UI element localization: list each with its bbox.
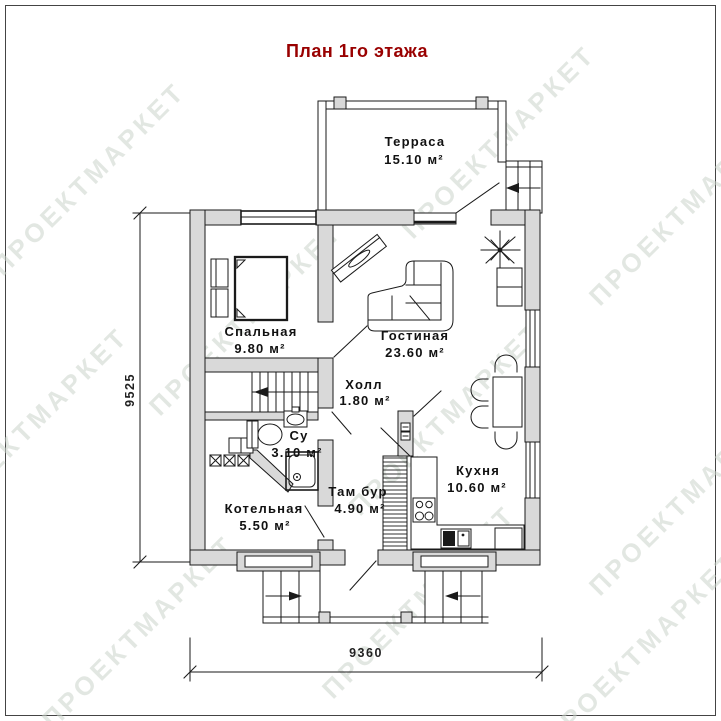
kitchen-cabinet xyxy=(495,528,522,549)
shelf-unit xyxy=(497,268,522,306)
nightstand xyxy=(211,289,228,317)
room-area-tambour: 4.90 м² xyxy=(334,501,385,516)
bed xyxy=(235,257,287,320)
wall-hall-left xyxy=(318,358,333,408)
switch-boxes xyxy=(401,423,410,440)
dimension-height-label: 9525 xyxy=(123,373,137,407)
nightstand xyxy=(211,259,228,287)
wall-bedroom-hall xyxy=(205,358,333,372)
room-label-boiler: Котельная xyxy=(225,501,304,516)
wall-stub xyxy=(318,540,333,550)
kitchen-sink-icon xyxy=(441,529,471,548)
room-label-hall: Холл xyxy=(345,377,382,392)
room-label-tambour: Там бур xyxy=(328,484,387,499)
floor-plan-drawing: ПРОЕКТМАРКЕТ ПРОЕКТМАРКЕТ ПРОЕКТМАРКЕТ П… xyxy=(0,0,721,721)
railing-post xyxy=(334,97,346,109)
terrace-steps xyxy=(506,161,542,213)
room-area-living: 23.60 м² xyxy=(385,345,445,360)
wall-bedroom-living xyxy=(318,225,333,322)
window-living xyxy=(526,310,540,367)
terrace-railing-right xyxy=(498,101,506,162)
stairs xyxy=(252,372,318,412)
railing-post xyxy=(401,612,412,623)
room-label-bedroom: Спальная xyxy=(225,324,298,339)
railing-post xyxy=(319,612,330,623)
dining-table xyxy=(493,377,522,427)
page-title: План 1го этажа xyxy=(286,41,429,61)
room-area-bath: 3.10 м² xyxy=(271,445,322,460)
room-area-terrace: 15.10 м² xyxy=(384,152,444,167)
floor-plan-page: ПРОЕКТМАРКЕТ ПРОЕКТМАРКЕТ ПРОЕКТМАРКЕТ П… xyxy=(0,0,721,721)
room-area-hall: 1.80 м² xyxy=(339,393,390,408)
room-label-terrace: Терраса xyxy=(385,134,446,149)
dimension-width-label: 9360 xyxy=(349,646,383,660)
room-label-bath: Су xyxy=(289,428,308,443)
room-area-kitchen: 10.60 м² xyxy=(447,480,507,495)
room-label-living: Гостиная xyxy=(381,328,449,343)
room-label-kitchen: Кухня xyxy=(456,463,500,478)
room-area-bedroom: 9.80 м² xyxy=(234,341,285,356)
terrace-railing-left xyxy=(318,101,326,213)
room-area-boiler: 5.50 м² xyxy=(239,518,290,533)
railing-post xyxy=(476,97,488,109)
radiator-hatch xyxy=(383,456,407,550)
window-kitchen xyxy=(526,442,540,498)
